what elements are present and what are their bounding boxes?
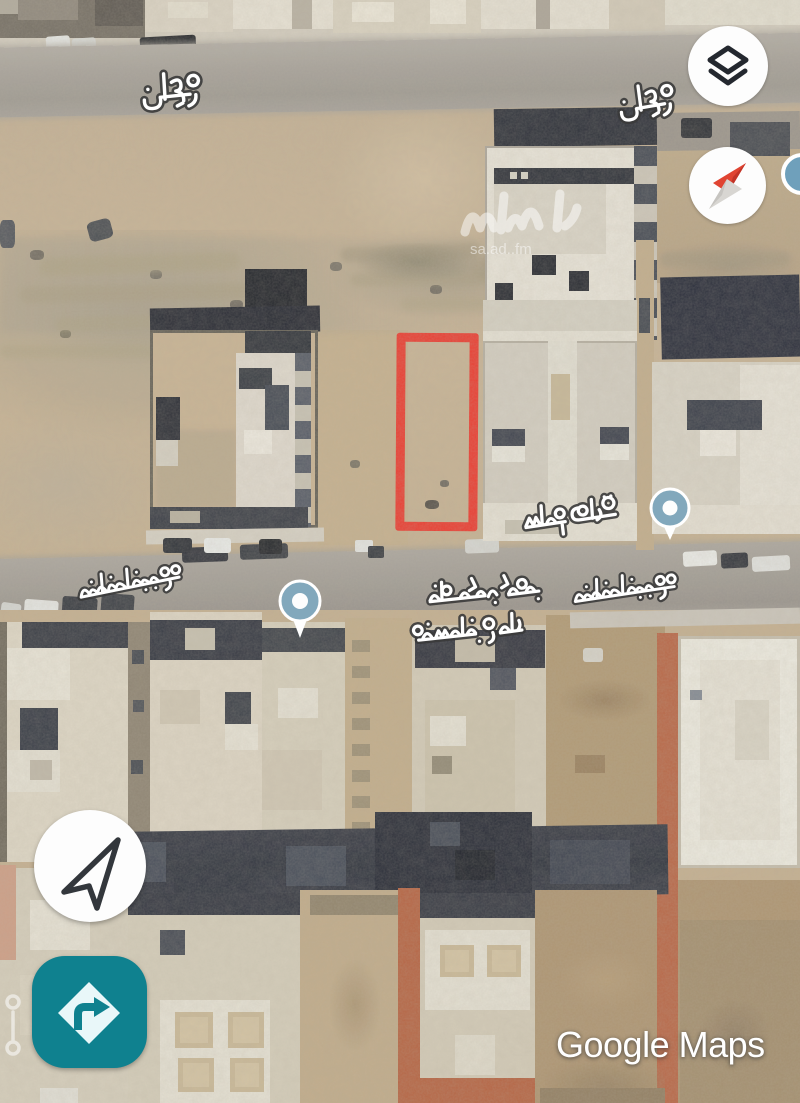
svg-text:sa.ad..fm: sa.ad..fm bbox=[470, 241, 532, 258]
